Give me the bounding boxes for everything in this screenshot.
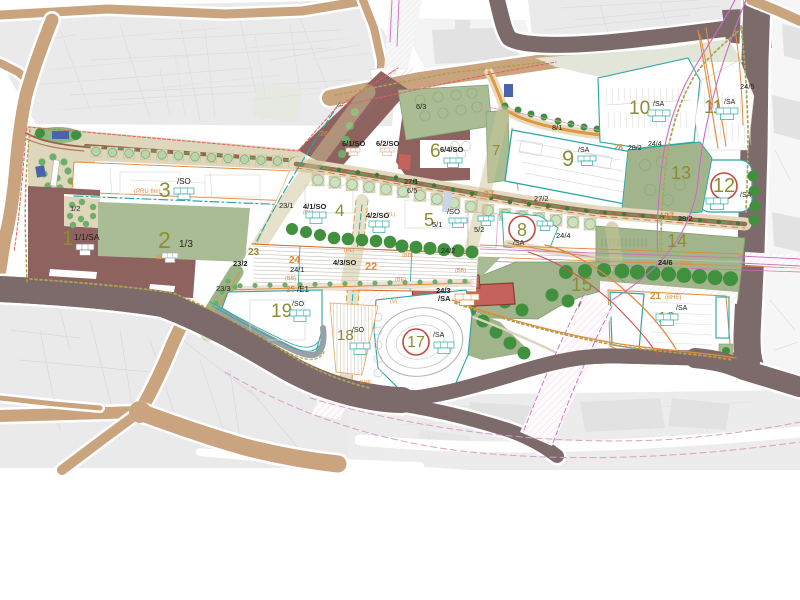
svg-text:3: 3 [159,179,171,202]
svg-text:2: 2 [158,227,171,253]
svg-text:24/6: 24/6 [658,258,673,267]
svg-text:28: 28 [614,143,623,152]
svg-text:7: 7 [492,142,500,159]
svg-text:1: 1 [62,227,74,250]
svg-text:24/2: 24/2 [441,246,456,255]
svg-text:(BB): (BB) [680,261,692,267]
svg-text:19: 19 [271,301,292,322]
svg-text:21: 21 [650,291,662,302]
svg-text:/SO: /SO [352,327,365,334]
svg-text:27: 27 [484,189,494,199]
svg-text:(PL): (PL) [344,248,355,254]
svg-text:(PRU 6m): (PRU 6m) [134,189,161,195]
svg-text:9: 9 [562,146,574,171]
svg-text:4/3/SO: 4/3/SO [333,258,357,267]
svg-text:6/3: 6/3 [416,102,426,111]
svg-text:8/1: 8/1 [552,123,562,132]
svg-text:6/1/SO: 6/1/SO [342,139,366,148]
svg-text:/SA: /SA [438,294,451,303]
svg-text:4: 4 [335,201,344,220]
svg-text:(BB): (BB) [455,268,466,274]
svg-text:/E1: /E1 [297,285,310,294]
svg-text:24/5: 24/5 [740,82,755,91]
svg-text:(BB): (BB) [402,253,413,259]
svg-text:22: 22 [365,261,377,273]
svg-text:(BE): (BE) [395,277,406,283]
svg-text:26/3: 26/3 [320,129,335,138]
svg-text:5/2: 5/2 [474,225,484,234]
svg-text:12: 12 [713,175,735,197]
svg-text:1/3: 1/3 [179,239,193,250]
svg-text:/SA: /SA [578,147,590,154]
svg-text:10: 10 [629,98,650,119]
svg-text:24/4: 24/4 [556,231,571,240]
svg-text:/SA: /SA [724,99,736,106]
svg-text:23/1: 23/1 [279,201,294,210]
svg-text:23/2: 23/2 [233,259,248,268]
svg-text:27/2: 27/2 [534,194,549,203]
svg-text:/SA: /SA [513,240,525,247]
svg-text:1/1/SA: 1/1/SA [74,232,100,242]
svg-text:24/1: 24/1 [290,265,305,274]
svg-text:/SO: /SO [292,301,305,308]
svg-text:(V): (V) [390,299,398,305]
svg-text:17: 17 [407,334,425,351]
svg-text:(BB): (BB) [285,276,296,282]
svg-text:27/1: 27/1 [404,177,419,186]
svg-text:6/5: 6/5 [407,186,417,195]
svg-text:28/2: 28/2 [628,145,642,152]
svg-text:24/4: 24/4 [648,141,662,148]
svg-text:13: 13 [671,163,691,183]
svg-text:29/2: 29/2 [678,214,693,223]
svg-text:23/3: 23/3 [216,284,231,293]
svg-text:8: 8 [517,220,527,240]
svg-text:5/1: 5/1 [432,220,442,229]
svg-text:/SA: /SA [740,192,752,199]
svg-text:/SA: /SA [653,101,665,108]
svg-text:/SA: /SA [676,305,688,312]
svg-text:6/2/SO: 6/2/SO [376,139,400,148]
svg-text:1/2: 1/2 [70,204,80,213]
svg-text:/SA: /SA [433,332,445,339]
svg-text:/SO: /SO [447,207,460,216]
svg-text:25: 25 [286,285,295,294]
svg-text:(BHE): (BHE) [665,295,681,301]
svg-text:14: 14 [667,231,687,251]
svg-text:BHE: BHE [360,380,372,386]
svg-text:15: 15 [571,275,592,296]
svg-text:23: 23 [248,247,260,258]
svg-text:27: 27 [664,211,674,221]
svg-text:/SO: /SO [177,177,191,186]
svg-text:(PL): (PL) [385,212,396,218]
svg-text:6: 6 [430,141,441,162]
svg-text:6/4/SO: 6/4/SO [440,145,464,154]
